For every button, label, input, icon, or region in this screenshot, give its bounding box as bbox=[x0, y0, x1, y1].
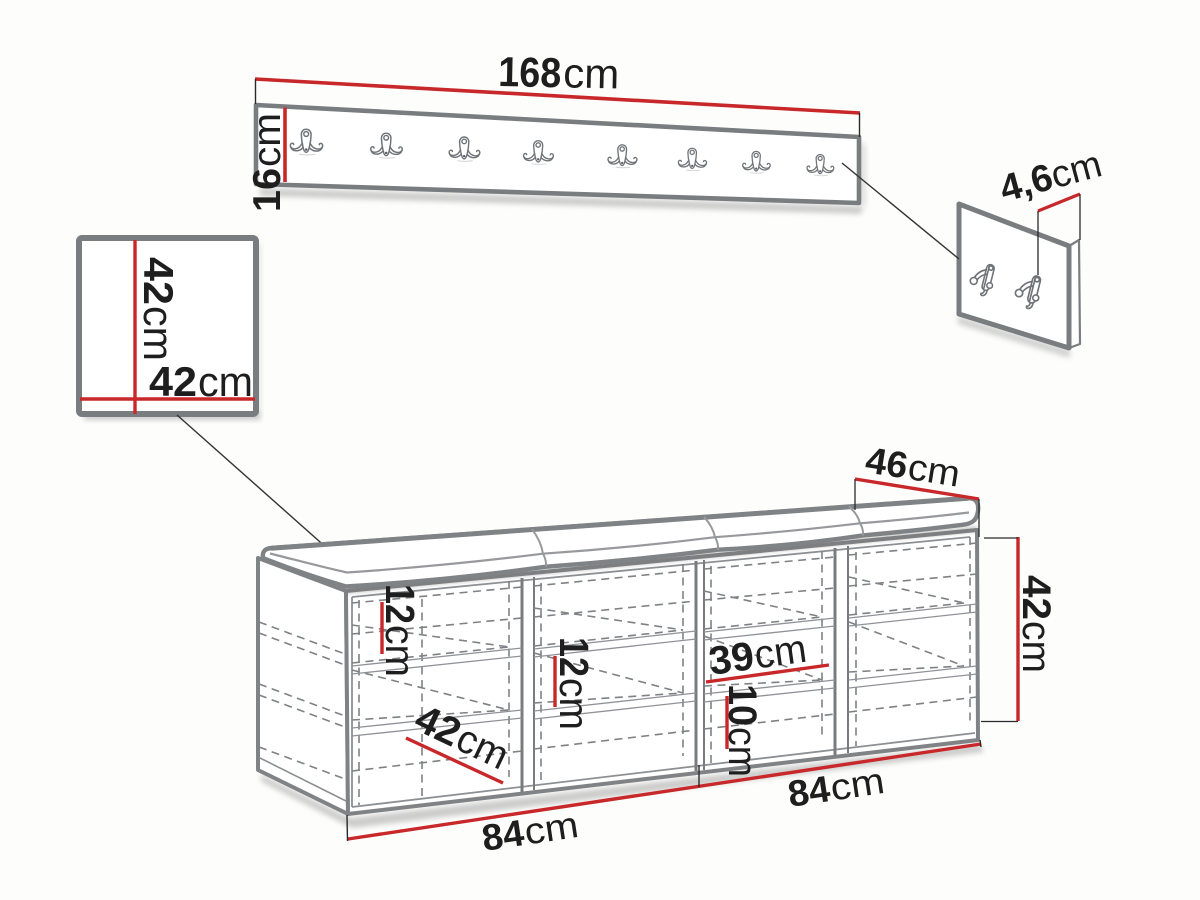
svg-text:16cm: 16cm bbox=[246, 113, 289, 212]
svg-text:12cm: 12cm bbox=[551, 637, 597, 730]
svg-text:168cm: 168cm bbox=[498, 48, 620, 98]
svg-text:42cm: 42cm bbox=[1014, 575, 1058, 673]
svg-text:12cm: 12cm bbox=[377, 584, 423, 677]
svg-text:42cm: 42cm bbox=[149, 358, 253, 405]
svg-text:10cm: 10cm bbox=[720, 684, 764, 777]
svg-text:42cm: 42cm bbox=[135, 257, 182, 361]
